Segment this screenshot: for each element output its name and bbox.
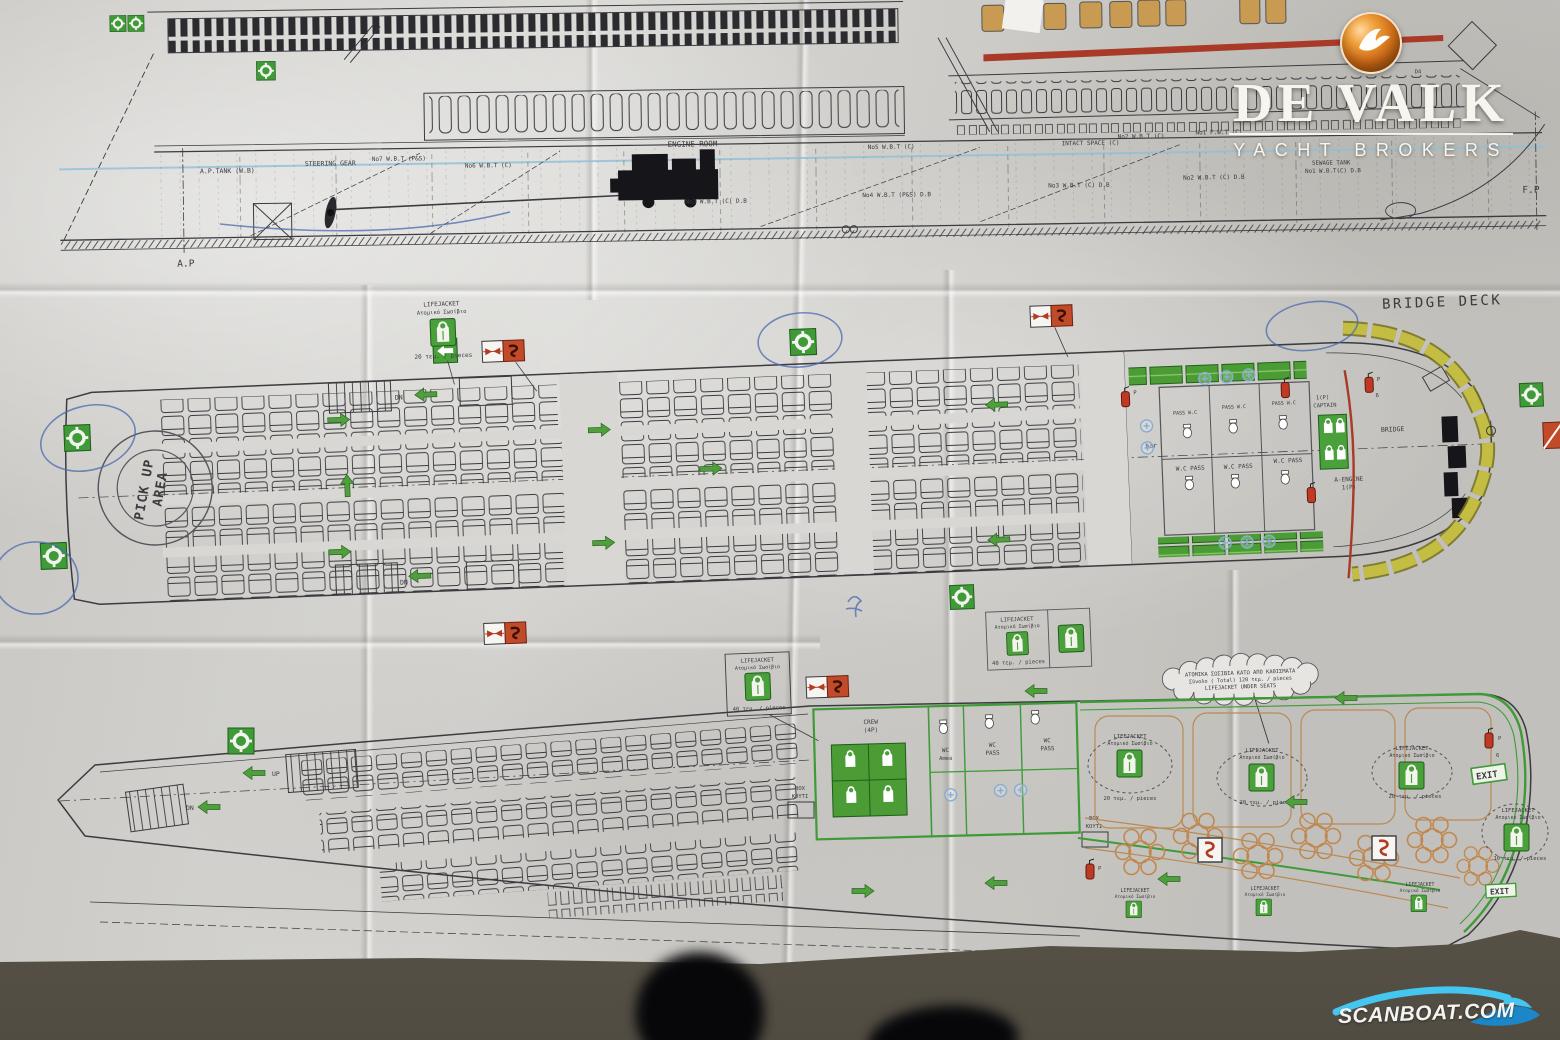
deck-mark: D4 xyxy=(1415,69,1422,75)
lifejacket-label-boxed: LIFEJACKET Ατομικό Σωσίβιο 40 τεμ. / pie… xyxy=(986,608,1092,670)
stair-label: UP xyxy=(272,770,280,778)
compartment-label: INTACT SPACE (C) xyxy=(1062,140,1120,148)
svg-text:Ατομικό Σωσίβιο: Ατομικό Σωσίβιο xyxy=(1115,893,1156,900)
crew-wc-block: CREW (4P) WC Amea WC PASS WC PASS xyxy=(813,703,1079,840)
svg-text:LIFEJACKET: LIFEJACKET xyxy=(1406,882,1435,888)
svg-text:EXIT: EXIT xyxy=(1490,887,1510,897)
wc-label: PASS W.C xyxy=(1272,400,1296,407)
wc-label: PASS W.C xyxy=(1222,404,1246,411)
captain-label: CAPTAIN xyxy=(1313,403,1336,410)
tank-label: No3 W.B.T (C) D.B xyxy=(685,198,747,206)
escape-arrow xyxy=(1025,685,1047,698)
fire-hose-station-icon xyxy=(1030,305,1073,328)
a-engine-label: A-ENGINE xyxy=(1334,476,1364,484)
tank-label: A.P.TANK (W.B) xyxy=(200,167,255,176)
fire-hose-box-icon xyxy=(1198,838,1222,862)
stair-label: DN xyxy=(186,804,194,812)
label-zones xyxy=(1088,737,1548,860)
fire-extinguisher-icon xyxy=(1485,728,1493,748)
svg-text:Ατομικό Σωσίβιο: Ατομικό Σωσίβιο xyxy=(1107,740,1152,747)
svg-text:LIFEJACKET: LIFEJACKET xyxy=(1245,748,1279,754)
captain-label: 1(P) xyxy=(1316,395,1329,402)
escape-arrow xyxy=(1335,692,1357,705)
tank-label: No5 W.B.T (C) xyxy=(868,143,915,151)
lifejacket-en: LIFEJACKET xyxy=(741,657,775,664)
wc-label: W.C PASS xyxy=(1273,457,1303,465)
tank-label: No2 W.B.T (C) xyxy=(1118,133,1165,141)
assembly-station-icon xyxy=(950,585,975,610)
tank-label: No3 W.B.T (C) D.B xyxy=(1048,182,1110,190)
wc-label: WC xyxy=(1044,738,1052,744)
fire-hose-station-icon xyxy=(482,340,525,363)
compartment-label: ENGINE ROOM xyxy=(668,139,718,149)
assembly-station-icon xyxy=(64,424,91,451)
wc-block: PASS W.C PASS W.C PASS W.C W.C PASS W.C … xyxy=(1128,359,1323,558)
bridge-console xyxy=(1441,416,1468,519)
profile-elevation-view: A.P.TANK (W.B) STEERING GEAR No7 W.B.T (… xyxy=(58,0,1547,271)
fire-hose-station-icon xyxy=(806,676,849,699)
tank-label: No1 W.B.T(C) D.B xyxy=(1305,168,1361,175)
lifejacket-label: LIFEJACKET Ατομικό Σωσίβιο 20 τεμ. / pie… xyxy=(412,300,473,386)
svg-text:LIFEJACKET: LIFEJACKET xyxy=(1113,734,1147,740)
assembly-station-icon xyxy=(110,15,126,31)
crew-label: CREW xyxy=(863,719,878,726)
svg-text:Ατομικό Σωσίβιο: Ατομικό Σωσίβιο xyxy=(1389,752,1434,759)
seat-rows xyxy=(299,723,801,918)
deck-title: BRIDGE DECK xyxy=(1382,292,1503,313)
wc-label: W.C PASS xyxy=(1176,465,1206,473)
assembly-station-icon xyxy=(256,61,275,80)
deck-plan-drawing: A.P.TANK (W.B) STEERING GEAR No7 W.B.T (… xyxy=(0,0,1560,1040)
tank-label: SEWAGE TANK xyxy=(1312,160,1351,167)
wc-amea-label: Amea xyxy=(939,756,952,762)
svg-text:LIFEJACKET: LIFEJACKET xyxy=(1501,808,1535,814)
fire-hose-box-icon xyxy=(1372,836,1396,860)
box-label: ΚΟΥΤΙ xyxy=(792,794,809,800)
wc-label: W.C PASS xyxy=(1224,463,1254,471)
tank-label: No1 F.W.T (C) xyxy=(1195,129,1242,137)
svg-text:Ατομικό Σωσίβιο: Ατομικό Σωσίβιο xyxy=(1245,891,1286,898)
lifejacket-label: LIFEJACKET Ατομικό Σωσίβιο 20 τεμ. / pie… xyxy=(1389,746,1442,800)
crew-label: (4P) xyxy=(864,727,879,734)
lifejacket-label: LIFEJACKET Ατομικό Σωσίβιο 10 τεμ. / pie… xyxy=(1494,808,1547,862)
crew-lifejacket-grid xyxy=(831,743,907,817)
svg-text:LIFEJACKET: LIFEJACKET xyxy=(1251,886,1280,892)
escape-arrow xyxy=(198,801,220,814)
ext-mark: 6 xyxy=(1496,753,1499,759)
svg-text:LIFEJACKET: LIFEJACKET xyxy=(1395,746,1429,752)
exit-sign: EXIT xyxy=(1486,883,1517,898)
lifejacket-label: LIFEJACKET Ατομικό Σωσίβιο 20 τεμ. / pie… xyxy=(1104,734,1157,802)
draft-plaque xyxy=(1448,22,1496,70)
fwd-perpendicular-label: F.P xyxy=(1522,185,1540,196)
svg-text:20 τεμ. / pieces: 20 τεμ. / pieces xyxy=(1240,800,1293,806)
stair-label: DN xyxy=(400,578,408,586)
ext-mark: P xyxy=(1133,390,1137,396)
wc-label: PASS xyxy=(986,751,1001,757)
wc-label: WC xyxy=(942,748,950,754)
fire-hose-station-icon xyxy=(484,622,527,645)
wc-label: WC xyxy=(989,743,997,749)
assembly-station-icon xyxy=(228,728,254,754)
svg-text:Ατομικό Σωσίβιο: Ατομικό Σωσίβιο xyxy=(1495,814,1540,821)
scanboat-watermark: SCANBOAT.COM xyxy=(1330,982,1550,1038)
assembly-station-icon xyxy=(128,15,144,31)
assembly-station-icon xyxy=(790,329,817,356)
escape-arrow xyxy=(1158,873,1180,886)
compartment-label: STEERING GEAR xyxy=(305,159,356,168)
box-label: BOX xyxy=(795,786,806,792)
upper-window-band xyxy=(168,9,898,53)
tank-label: No7 W.B.T (P&S) xyxy=(372,155,426,163)
wc-label: PASS W.C xyxy=(1173,410,1197,417)
svg-text:20 τεμ. / pieces: 20 τεμ. / pieces xyxy=(1104,796,1157,802)
mid-window-band xyxy=(429,90,900,139)
lifejacket-gr: Ατομικό Σωσίβιο xyxy=(417,308,467,317)
windshield-line xyxy=(1341,370,1359,578)
white-sticker xyxy=(1002,0,1044,33)
svg-text:20 τεμ. / pieces: 20 τεμ. / pieces xyxy=(1389,794,1442,800)
svg-text:LIFEJACKET: LIFEJACKET xyxy=(1121,888,1150,894)
tank-label: No4 W.B.T (P&S) D.B xyxy=(862,191,931,199)
aft-lounge: LIFEJACKET Ατομικό Σωσίβιο 20 τεμ. / pie… xyxy=(852,685,1548,933)
escape-arrow xyxy=(985,877,1007,890)
fwd-window-band xyxy=(955,75,1460,116)
escape-arrow xyxy=(243,767,265,780)
fire-extinguisher-icon xyxy=(1086,859,1094,879)
hull-stripe xyxy=(983,35,1443,61)
lower-deck-plan: UP DN CREW (4P) xyxy=(58,685,1548,955)
lifejacket-qty: 40 τεμ. / pieces xyxy=(992,659,1045,667)
svg-text:Ατομικό Σωσίβιο: Ατομικό Σωσίβιο xyxy=(1400,887,1441,894)
aft-perpendicular-label: A.P xyxy=(177,258,195,269)
ext-mark: 6 xyxy=(1375,393,1379,399)
escape-arrow xyxy=(1285,796,1307,809)
tank-label: No2 W.B.T (C) D.B xyxy=(1183,174,1245,182)
exit-sign: EXIT xyxy=(1471,764,1507,785)
photo-ship-safety-plan: A.P.TANK (W.B) STEERING GEAR No7 W.B.T (… xyxy=(0,0,1560,1040)
wc-label: PASS xyxy=(1040,746,1055,752)
bridge-label: BRIDGE xyxy=(1381,425,1405,434)
svg-text:Ατομικό Σωσίβιο: Ατομικό Σωσίβιο xyxy=(1239,754,1284,761)
ext-mark: P xyxy=(1377,377,1381,383)
svg-text:10 τεμ. / pieces: 10 τεμ. / pieces xyxy=(1494,856,1547,862)
lifejacket-label: LIFEJACKET Ατομικό Σωσίβιο 20 τεμ. / pie… xyxy=(1239,748,1292,806)
stair-label: DN xyxy=(395,393,403,401)
edge-lifejacket-labels: LIFEJACKET Ατομικό Σωσίβιο LIFEJACKET Ατ… xyxy=(1115,882,1517,918)
ext-mark: P xyxy=(1498,736,1502,742)
lifejacket-en: LIFEJACKET xyxy=(423,300,460,308)
assembly-station-icon xyxy=(40,542,67,569)
lifejacket-en: LIFEJACKET xyxy=(1000,616,1034,623)
fire-extinguisher-icon xyxy=(1307,482,1316,502)
escape-arrow xyxy=(852,885,874,898)
tank-label: No6 W.B.T (C) xyxy=(465,162,512,170)
lifejacket-qty: 20 τεμ. / pieces xyxy=(414,352,472,361)
assembly-station-icon xyxy=(1519,383,1543,407)
ext-mark: P xyxy=(1098,866,1102,872)
fire-extinguisher-icon xyxy=(1365,372,1374,392)
fire-panel xyxy=(1543,422,1560,449)
